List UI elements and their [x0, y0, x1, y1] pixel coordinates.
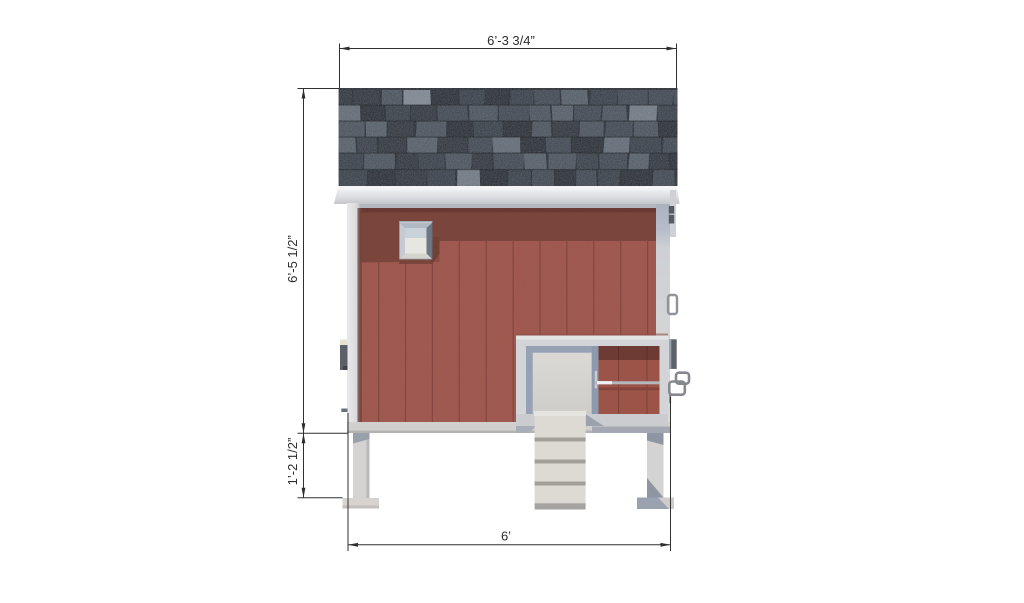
svg-text:6’: 6’ — [501, 529, 511, 544]
svg-text:6’-3 3/4”: 6’-3 3/4” — [487, 33, 535, 48]
svg-text:6’-5 1/2”: 6’-5 1/2” — [285, 235, 300, 283]
svg-text:1’-2 1/2”: 1’-2 1/2” — [285, 438, 300, 486]
